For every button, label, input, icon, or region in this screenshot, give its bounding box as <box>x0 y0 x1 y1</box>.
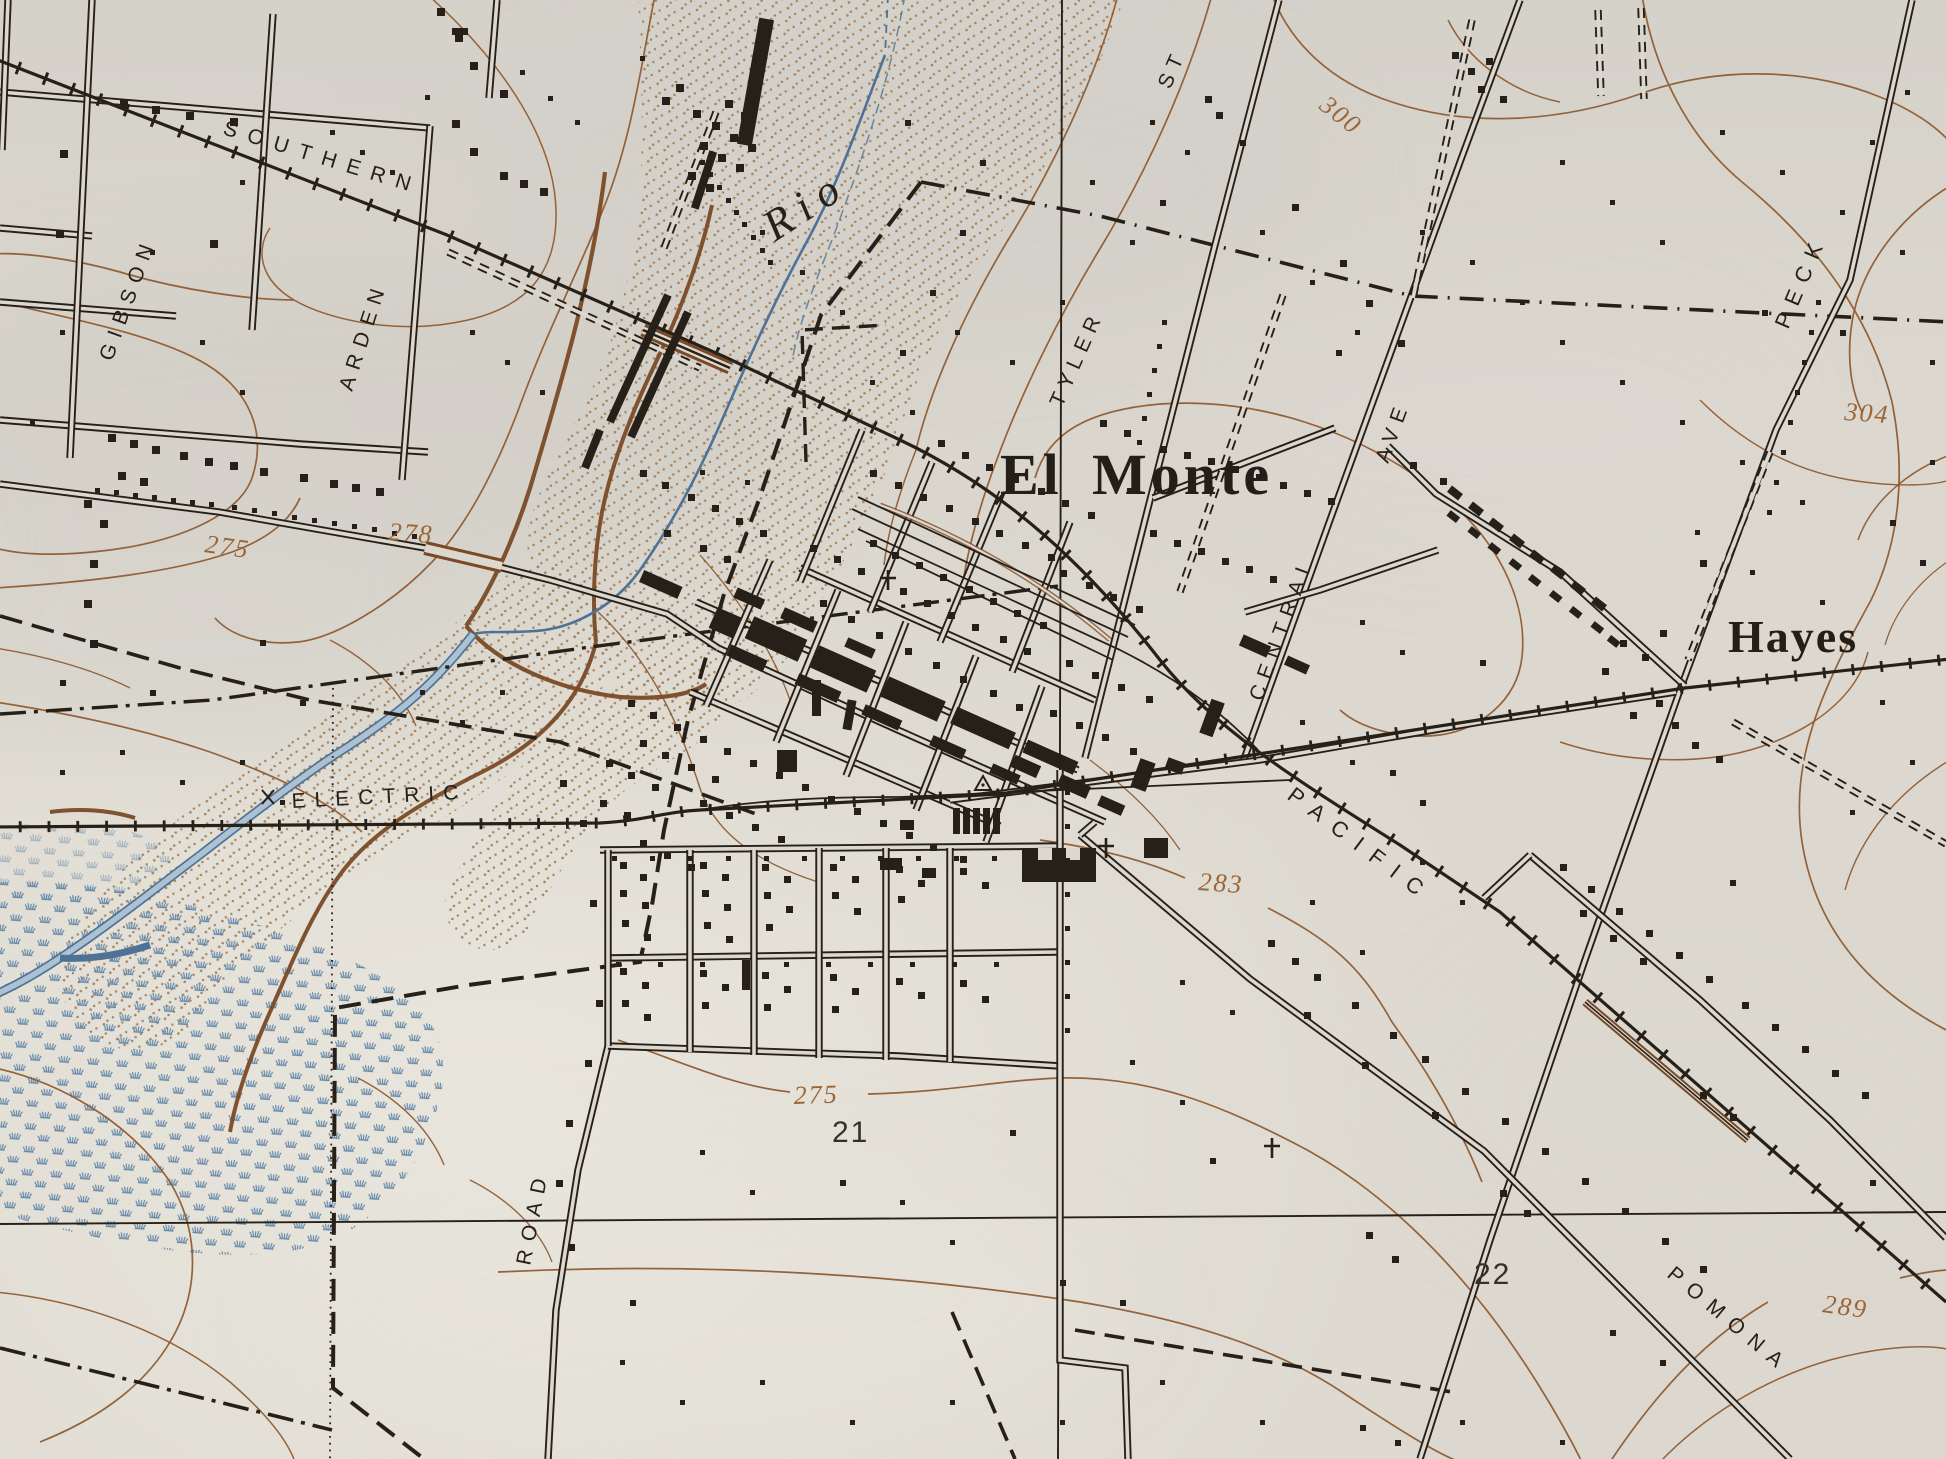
svg-text:21: 21 <box>832 1116 869 1149</box>
svg-text:Hayes: Hayes <box>1728 611 1858 662</box>
svg-text:El: El <box>1000 442 1063 507</box>
svg-text:275: 275 <box>203 529 252 564</box>
svg-text:Monte: Monte <box>1092 442 1273 507</box>
svg-text:304: 304 <box>1843 397 1891 429</box>
svg-text:22: 22 <box>1474 1258 1511 1291</box>
svg-text:283: 283 <box>1198 867 1245 899</box>
svg-text:289: 289 <box>1821 1289 1870 1324</box>
svg-text:275: 275 <box>793 1079 839 1110</box>
svg-text:278: 278 <box>388 517 435 549</box>
